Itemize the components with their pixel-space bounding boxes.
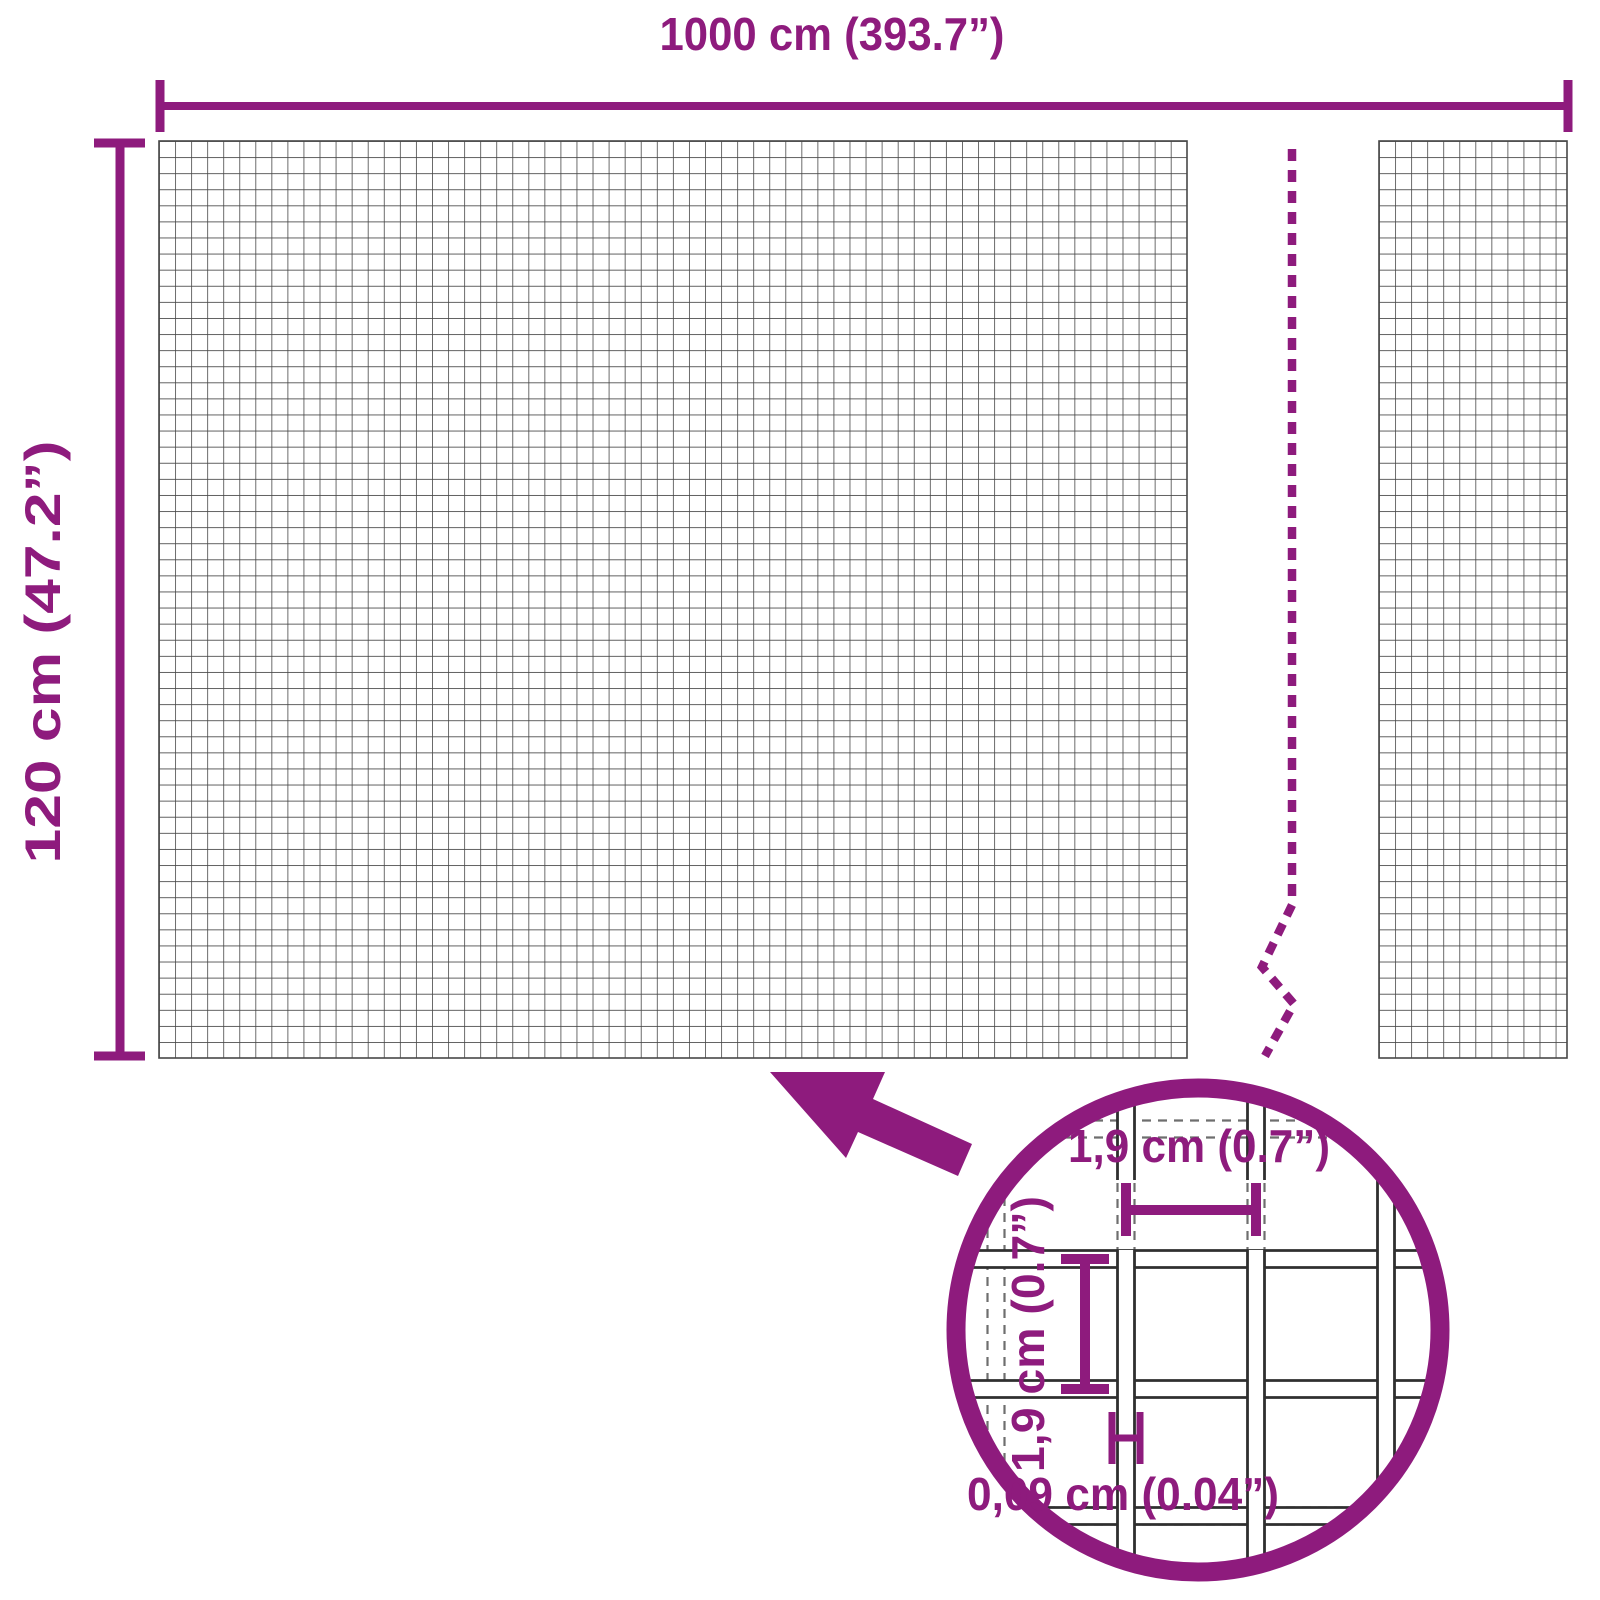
left-dimension bbox=[94, 143, 145, 1056]
wire-thickness-label: 0,09 cm (0.04”) bbox=[967, 1468, 1279, 1520]
overall-height-label: 120 cm (47.2”) bbox=[15, 441, 71, 864]
detail-markers bbox=[1061, 1183, 1256, 1464]
break-line bbox=[1262, 149, 1294, 1056]
overall-width-label: 1000 cm (393.7”) bbox=[660, 8, 1005, 60]
mesh-panel-right bbox=[1379, 141, 1567, 1058]
top-dimension bbox=[160, 80, 1568, 132]
diagram-canvas: 1000 cm (393.7”) 120 cm (47.2”) 1,9 cm (… bbox=[0, 0, 1600, 1600]
page: 1000 cm (393.7”) 120 cm (47.2”) 1,9 cm (… bbox=[0, 0, 1600, 1600]
detail-width-label: 1,9 cm (0.7”) bbox=[1068, 1120, 1330, 1172]
detail-height-label: 1,9 cm (0.7”) bbox=[1002, 1196, 1054, 1472]
zoom-arrow-icon bbox=[770, 1072, 972, 1176]
mesh-panel-main bbox=[159, 141, 1187, 1058]
